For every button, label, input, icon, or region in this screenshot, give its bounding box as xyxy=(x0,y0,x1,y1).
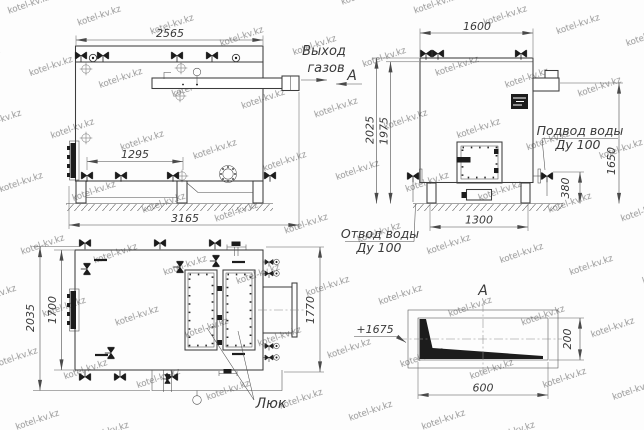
door-hinge xyxy=(494,168,499,173)
dim-label: 1295 xyxy=(121,148,149,161)
flange-icon xyxy=(232,54,239,61)
water-inlet-label-line1: Подвод воды xyxy=(537,123,624,138)
gas-outlet-label-line2: газов xyxy=(307,61,344,76)
door-hinge xyxy=(494,149,499,154)
section-title: А xyxy=(477,283,488,299)
water-outlet-label-line2: Ду 100 xyxy=(356,240,402,255)
dim-label: 2025 xyxy=(364,116,377,144)
nameplate xyxy=(511,94,528,109)
dim-label: 200 xyxy=(561,329,574,350)
gas-outlet-label-line1: Выход xyxy=(302,44,346,59)
dim-label: 1700 xyxy=(46,296,59,324)
dim-label: 2035 xyxy=(24,304,37,332)
dim-label: 1650 xyxy=(605,147,618,175)
boiler-technical-drawing: kotel-kv.kz kotel-kv.kz xyxy=(0,0,644,430)
dim-label: 2565 xyxy=(156,27,184,40)
gas-outlet-callout: Выход газов xyxy=(301,44,346,80)
dim-label: 1770 xyxy=(304,296,317,324)
water-outlet-label-line1: Отвод воды xyxy=(341,226,419,241)
section-arrow-label: А xyxy=(346,68,357,84)
flange-icon xyxy=(89,54,96,61)
door-handle xyxy=(457,157,471,163)
ground xyxy=(66,204,273,212)
hatch-label: Люк xyxy=(255,396,287,412)
dim-label: 380 xyxy=(559,178,572,199)
dim-label: 3165 xyxy=(171,212,199,225)
technical-drawing-page: kotel-kv.kz kotel-kv.kz xyxy=(0,0,644,430)
water-inlet-label-line2: Ду 100 xyxy=(555,137,601,152)
dim-label: 1300 xyxy=(465,214,493,227)
dim-label: 1975 xyxy=(378,117,391,145)
ground xyxy=(413,204,563,212)
dim-label: 1600 xyxy=(463,20,491,33)
dim-label: 600 xyxy=(473,382,494,395)
elevation-label: +1675 xyxy=(356,323,393,336)
